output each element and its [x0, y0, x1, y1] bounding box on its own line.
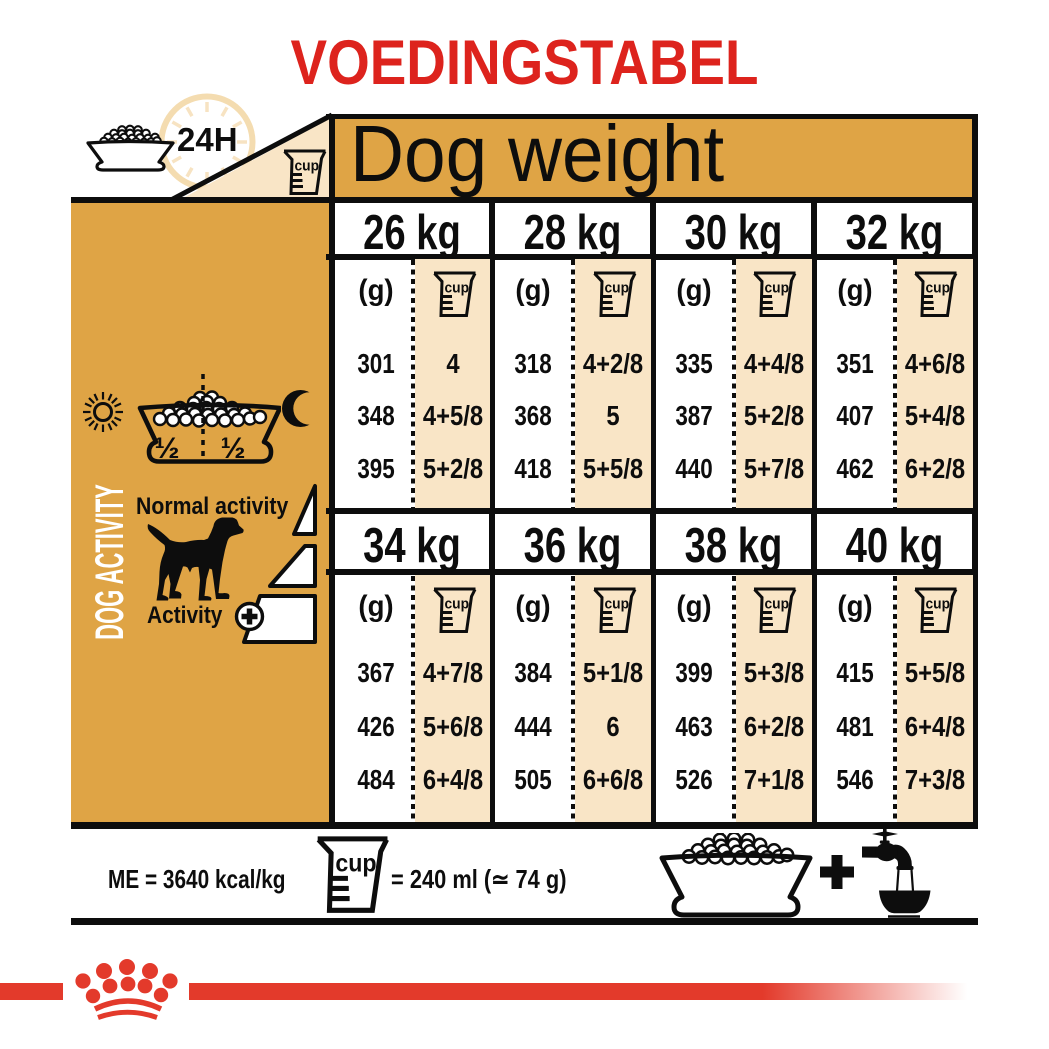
svg-text:½: ½	[154, 432, 179, 465]
svg-text:½: ½	[220, 432, 245, 465]
